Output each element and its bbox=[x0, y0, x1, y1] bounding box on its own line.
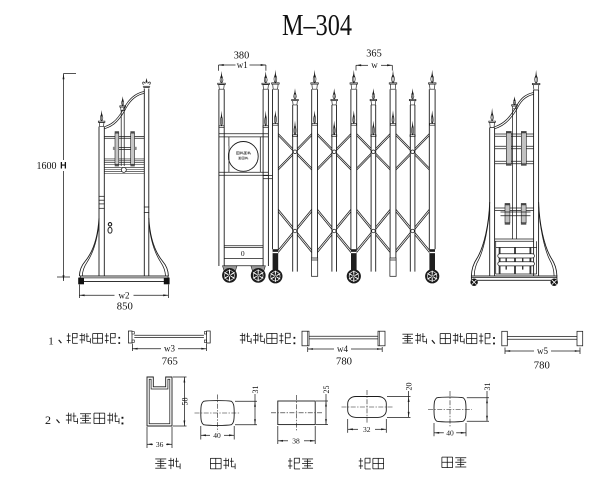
svg-text:w4: w4 bbox=[337, 344, 348, 354]
svg-text:31: 31 bbox=[251, 386, 260, 394]
svg-text:H: H bbox=[60, 161, 67, 171]
svg-text:850: 850 bbox=[117, 302, 133, 313]
svg-text:w1: w1 bbox=[237, 60, 248, 70]
svg-text:2: 2 bbox=[45, 413, 51, 427]
svg-text:25: 25 bbox=[322, 386, 331, 394]
svg-text:0: 0 bbox=[241, 249, 245, 258]
svg-text:w: w bbox=[371, 60, 378, 70]
svg-text:31: 31 bbox=[483, 383, 492, 391]
svg-text:780: 780 bbox=[534, 360, 550, 371]
svg-text:20: 20 bbox=[404, 383, 413, 391]
svg-text:40: 40 bbox=[213, 431, 221, 440]
svg-text:M–304: M–304 bbox=[282, 7, 352, 42]
svg-text:40: 40 bbox=[446, 429, 454, 438]
svg-text:1600: 1600 bbox=[37, 161, 57, 172]
svg-text:780: 780 bbox=[336, 356, 352, 367]
svg-text:365: 365 bbox=[366, 48, 382, 59]
svg-text:58: 58 bbox=[181, 398, 190, 406]
svg-text:32: 32 bbox=[363, 425, 371, 434]
svg-text:38: 38 bbox=[292, 437, 300, 446]
svg-text:1: 1 bbox=[48, 336, 54, 348]
svg-text:w3: w3 bbox=[164, 344, 175, 354]
svg-text:w5: w5 bbox=[537, 346, 548, 356]
svg-text:765: 765 bbox=[162, 357, 178, 368]
svg-text:36: 36 bbox=[156, 440, 164, 449]
svg-text:w2: w2 bbox=[119, 290, 130, 300]
